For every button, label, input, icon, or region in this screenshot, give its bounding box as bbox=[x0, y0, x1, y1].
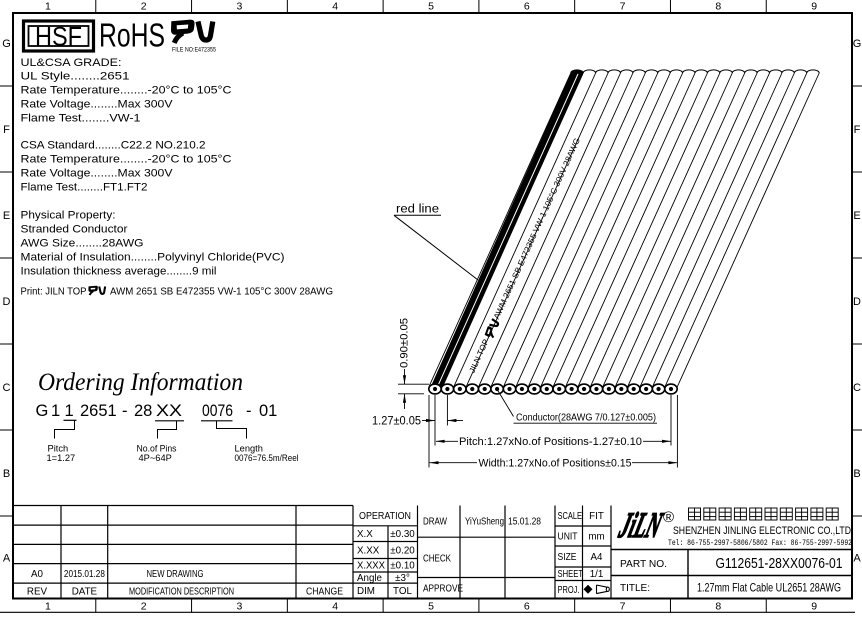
svg-text:Flame Test........VW-1: Flame Test........VW-1 bbox=[21, 113, 141, 125]
svg-text:1/1: 1/1 bbox=[590, 569, 604, 580]
svg-text:G: G bbox=[853, 38, 862, 50]
svg-text:3: 3 bbox=[237, 601, 243, 613]
svg-text:DIM: DIM bbox=[357, 586, 375, 597]
svg-text:XX: XX bbox=[156, 402, 182, 420]
svg-text:UL&CSA GRADE:: UL&CSA GRADE: bbox=[21, 57, 122, 69]
svg-text:Width:1.27xNo.of Positions±0.: Width:1.27xNo.of Positions±0.15 bbox=[479, 458, 632, 470]
svg-text:Print: JILN TOP: Print: JILN TOP bbox=[21, 287, 87, 298]
svg-text:Conductor(28AWG 7/0.127±0.005): Conductor(28AWG 7/0.127±0.005) bbox=[516, 412, 656, 423]
svg-text:B: B bbox=[853, 468, 860, 480]
svg-text:DRAW: DRAW bbox=[423, 517, 448, 528]
svg-text:1: 1 bbox=[51, 402, 60, 420]
svg-text:Tel: 86-755-2997-5806/5802: Tel: 86-755-2997-5806/5802 Fax: 86-755-2… bbox=[668, 538, 852, 548]
svg-text:Stranded Conductor: Stranded Conductor bbox=[21, 224, 128, 236]
svg-text:CSA Standard........C22.2 NO.2: CSA Standard........C22.2 NO.210.2 bbox=[21, 140, 206, 152]
svg-text:0076: 0076 bbox=[202, 402, 233, 420]
svg-text:Rate Temperature........-20°C: Rate Temperature........-20°C to 105°C bbox=[21, 85, 232, 97]
svg-text:0.90±0.05: 0.90±0.05 bbox=[399, 318, 411, 368]
svg-text:1=1.27: 1=1.27 bbox=[47, 453, 76, 463]
svg-text:®: ® bbox=[663, 509, 674, 526]
svg-text:D: D bbox=[3, 296, 11, 308]
svg-text:CHANGE: CHANGE bbox=[306, 586, 343, 597]
svg-text:Rate Voltage........Max 300V: Rate Voltage........Max 300V bbox=[21, 99, 173, 111]
svg-text:MODIFICATION DESCRIPTION: MODIFICATION DESCRIPTION bbox=[129, 586, 234, 597]
svg-text:UL Style........2651: UL Style........2651 bbox=[21, 71, 130, 83]
svg-text:Pitch: Pitch bbox=[48, 444, 69, 454]
svg-text:SCALE: SCALE bbox=[558, 511, 583, 522]
svg-text:TITLE:: TITLE: bbox=[620, 582, 650, 594]
svg-text:±0.30: ±0.30 bbox=[390, 529, 415, 540]
svg-text:APPROVE: APPROVE bbox=[423, 584, 463, 595]
svg-text:1.27±0.05: 1.27±0.05 bbox=[372, 415, 421, 427]
svg-text:0076=76.5m/Reel: 0076=76.5m/Reel bbox=[235, 453, 299, 463]
svg-text:SHENZHEN JINLING ELECTRONIC CO: SHENZHEN JINLING ELECTRONIC CO.,LTD bbox=[673, 525, 851, 537]
svg-text:A: A bbox=[3, 553, 11, 565]
svg-text:TOL: TOL bbox=[393, 586, 412, 597]
svg-text:±0.10: ±0.10 bbox=[390, 561, 415, 572]
svg-text:Ordering Information: Ordering Information bbox=[38, 367, 243, 396]
svg-text:G112651-28XX0076-01: G112651-28XX0076-01 bbox=[716, 556, 843, 572]
svg-text:Angle: Angle bbox=[357, 573, 383, 584]
svg-text:B: B bbox=[3, 468, 10, 480]
svg-text:SIZE: SIZE bbox=[558, 552, 577, 563]
svg-text:4: 4 bbox=[332, 1, 338, 13]
svg-text:±0.20: ±0.20 bbox=[390, 545, 415, 556]
svg-text:REV: REV bbox=[27, 586, 48, 597]
svg-text:No.of Pins: No.of Pins bbox=[137, 444, 177, 454]
svg-text:YiYuSheng: YiYuSheng bbox=[465, 517, 504, 528]
svg-text:1: 1 bbox=[45, 1, 51, 13]
svg-text:Rate Voltage........Max 300V: Rate Voltage........Max 300V bbox=[21, 168, 173, 180]
svg-text:Rate Temperature........-20°C: Rate Temperature........-20°C to 105°C bbox=[21, 154, 232, 166]
svg-text:±3°: ±3° bbox=[395, 573, 410, 584]
svg-text:AWG Size........28AWG: AWG Size........28AWG bbox=[21, 238, 144, 250]
svg-text:X.XX: X.XX bbox=[357, 545, 380, 556]
svg-text:6: 6 bbox=[524, 1, 530, 13]
svg-text:Insulation thickness average..: Insulation thickness average........9 mi… bbox=[21, 266, 217, 278]
svg-text:FIT: FIT bbox=[589, 511, 604, 522]
svg-text:Length: Length bbox=[235, 444, 263, 454]
svg-text:4: 4 bbox=[332, 601, 338, 613]
svg-text:15.01.28: 15.01.28 bbox=[508, 517, 541, 528]
svg-text:AWM 2651 SB E472355 VW-1 105°C: AWM 2651 SB E472355 VW-1 105°C 300V 28AW… bbox=[110, 287, 333, 298]
svg-text:RoHS: RoHS bbox=[99, 17, 165, 54]
svg-text:8: 8 bbox=[715, 1, 721, 13]
svg-text:X.XXX: X.XXX bbox=[357, 561, 385, 572]
svg-text:9: 9 bbox=[811, 601, 817, 613]
svg-text:G: G bbox=[36, 402, 49, 420]
svg-text:red line: red line bbox=[396, 204, 439, 216]
svg-text:OPERATION: OPERATION bbox=[359, 511, 411, 522]
svg-text:2: 2 bbox=[141, 601, 147, 613]
svg-text:E: E bbox=[3, 210, 10, 222]
svg-text:G: G bbox=[2, 38, 11, 50]
svg-text:NEW DRAWING: NEW DRAWING bbox=[147, 569, 204, 580]
svg-text:1.27mm Flat Cable UL2651 2: 1.27mm Flat Cable UL2651 28AWG bbox=[697, 582, 841, 595]
svg-text:9: 9 bbox=[811, 1, 817, 13]
svg-text:SHEET: SHEET bbox=[558, 569, 584, 580]
svg-text:PART NO.: PART NO. bbox=[620, 558, 667, 570]
svg-text:5: 5 bbox=[428, 601, 434, 613]
svg-text:PROJ.: PROJ. bbox=[558, 585, 580, 596]
svg-text:HSF: HSF bbox=[35, 22, 82, 52]
svg-text:5: 5 bbox=[428, 1, 434, 13]
svg-text:X.X: X.X bbox=[357, 529, 373, 540]
svg-text:Pitch:1.27xNo.of Positions-1.: Pitch:1.27xNo.of Positions-1.27±0.10 bbox=[459, 436, 642, 448]
svg-text:FILE NO:E472355: FILE NO:E472355 bbox=[172, 47, 216, 54]
svg-text:6: 6 bbox=[524, 601, 530, 613]
svg-text:2651: 2651 bbox=[80, 402, 117, 420]
svg-text:A0: A0 bbox=[31, 569, 44, 580]
svg-text:C: C bbox=[3, 382, 11, 394]
svg-text:DATE: DATE bbox=[72, 586, 98, 597]
svg-text:CHECK: CHECK bbox=[423, 554, 451, 565]
svg-text:F: F bbox=[3, 124, 10, 136]
svg-text:-: - bbox=[246, 402, 252, 420]
svg-text:8: 8 bbox=[715, 601, 721, 613]
svg-text:Physical Property:: Physical Property: bbox=[21, 210, 116, 222]
svg-text:UNIT: UNIT bbox=[558, 531, 578, 542]
svg-text:7: 7 bbox=[620, 601, 626, 613]
svg-text:1: 1 bbox=[65, 402, 74, 420]
svg-text:-: - bbox=[122, 402, 128, 420]
svg-text:C: C bbox=[853, 382, 861, 394]
svg-text:01: 01 bbox=[259, 402, 277, 420]
svg-text:Flame Test........FT1.FT2: Flame Test........FT1.FT2 bbox=[21, 182, 148, 194]
svg-text:Material of Insulation........: Material of Insulation........Polyvinyl … bbox=[21, 252, 285, 264]
svg-text:2015.01.28: 2015.01.28 bbox=[64, 569, 105, 580]
svg-text:D: D bbox=[853, 296, 861, 308]
svg-text:A4: A4 bbox=[591, 552, 604, 563]
svg-text:A: A bbox=[853, 553, 861, 565]
svg-text:mm: mm bbox=[588, 531, 604, 542]
svg-text:F: F bbox=[854, 124, 861, 136]
svg-text:2: 2 bbox=[141, 1, 147, 13]
svg-text:3: 3 bbox=[237, 1, 243, 13]
svg-text:7: 7 bbox=[620, 1, 626, 13]
svg-text:28: 28 bbox=[134, 402, 152, 420]
svg-text:1: 1 bbox=[45, 601, 51, 613]
svg-text:4P~64P: 4P~64P bbox=[139, 453, 172, 463]
svg-text:E: E bbox=[853, 210, 860, 222]
